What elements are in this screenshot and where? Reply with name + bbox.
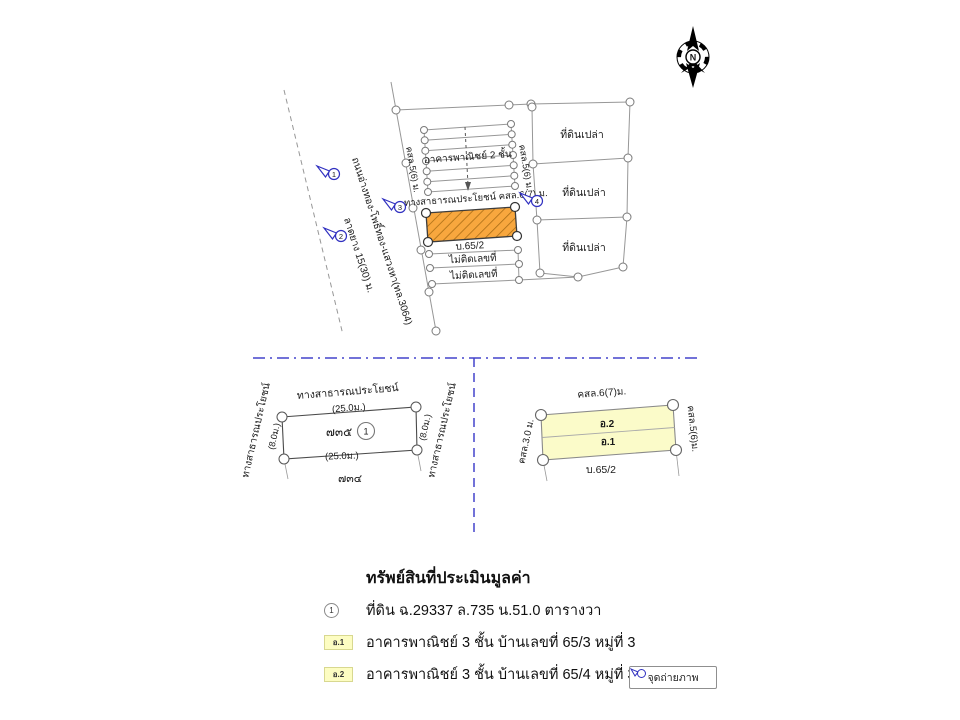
photo-point-button[interactable]: จุดถ่ายภาพ bbox=[629, 666, 717, 689]
legend-title: ทรัพย์สินที่ประเมินมูลค่า bbox=[366, 566, 678, 591]
subject-house-number: บ.65/2 bbox=[455, 240, 485, 253]
legend-row-building-2: อ.2 อาคารพาณิชย์ 3 ชั้น บ้านเลขที่ 65/4 … bbox=[318, 663, 678, 686]
road-left-edge bbox=[284, 90, 343, 335]
building-top-road-label: คสล.6(7)ม. bbox=[577, 386, 627, 400]
land-left-way-label: ทางสาธารณประโยชน์ bbox=[238, 381, 273, 479]
photo-point-label: จุดถ่ายภาพ bbox=[647, 669, 698, 686]
legend: ทรัพย์สินที่ประเมินมูลค่า 1 ที่ดิน ฉ.293… bbox=[318, 566, 678, 695]
compass-n-label: N bbox=[690, 53, 697, 63]
building-right-road-label: คสล.5(6)ม. bbox=[685, 405, 701, 452]
legend-row-land: 1 ที่ดิน ฉ.29337 ล.735 น.51.0 ตารางวา bbox=[318, 599, 678, 622]
legend-building-1-text: อาคารพาณิชย์ 3 ชั้น บ้านเลขที่ 65/3 หมู่… bbox=[366, 631, 636, 654]
building-left-road-label: คสล.3.0 ม. bbox=[516, 418, 536, 465]
photo-marker-2-icon: 2 bbox=[324, 228, 347, 242]
svg-text:1: 1 bbox=[332, 170, 336, 179]
photo-marker-1-icon: 1 bbox=[317, 166, 340, 180]
legend-building-2-text: อาคารพาณิชย์ 3 ชั้น บ้านเลขที่ 65/4 หมู่… bbox=[366, 663, 636, 686]
building-block-label: อาคารพาณิชย์ 2 ชั้น bbox=[423, 146, 512, 166]
building-house-number: บ.65/2 bbox=[586, 464, 616, 476]
compass-north-arrow: N bbox=[677, 26, 709, 88]
land-right-dimension: (8.0ม.) bbox=[417, 413, 433, 442]
legend-row-building-1: อ.1 อาคารพาณิชย์ 3 ชั้น บ้านเลขที่ 65/3 … bbox=[318, 631, 678, 654]
svg-text:4: 4 bbox=[535, 197, 539, 206]
site-map bbox=[284, 82, 630, 335]
vacant-land-2: ที่ดินเปล่า bbox=[562, 185, 606, 199]
building-detail-diagram: คสล.6(7)ม. คสล.3.0 ม. คสล.5(6)ม. อ.2 อ.1… bbox=[516, 386, 700, 481]
land-detail-diagram: ทางสาธารณประโยชน์ (25.0ม.) ๗๓๕ 1 (25.0ม.… bbox=[238, 381, 459, 485]
svg-text:3: 3 bbox=[398, 203, 402, 212]
vacant-land-3: ที่ดินเปล่า bbox=[562, 240, 606, 254]
land-left-dimension: (8.0ม.) bbox=[266, 422, 282, 451]
building-unit-1-label: อ.1 bbox=[601, 437, 616, 448]
no-number-strip-2: ไม่ติดเลขที่ bbox=[449, 266, 498, 283]
legend-land-text: ที่ดิน ฉ.29337 ล.735 น.51.0 ตารางวา bbox=[366, 599, 601, 622]
land-circle-badge: 1 bbox=[324, 603, 339, 618]
land-top-dimension: (25.0ม.) bbox=[332, 402, 366, 416]
svg-text:2: 2 bbox=[339, 232, 343, 241]
land-top-way-label: ทางสาธารณประโยชน์ bbox=[296, 381, 399, 402]
building-1-badge: อ.1 bbox=[324, 635, 353, 650]
photo-point-flag-icon bbox=[630, 667, 648, 680]
building-2-badge: อ.2 bbox=[324, 667, 353, 682]
survey-report-page: N bbox=[0, 0, 960, 720]
land-bottom-dimension: (25.0ม.) bbox=[325, 450, 359, 462]
subject-parcel-hatched bbox=[426, 207, 517, 242]
land-parcel-number: ๗๓๕ bbox=[326, 425, 352, 439]
vacant-land-1: ที่ดินเปล่า bbox=[560, 127, 604, 141]
photo-marker-3-icon: 3 bbox=[383, 199, 406, 213]
building-unit-2-label: อ.2 bbox=[600, 419, 615, 430]
adjacent-parcel-number: ๗๓๔ bbox=[338, 473, 362, 485]
land-marker-number: 1 bbox=[363, 427, 368, 437]
road-surface-label: ลาดยาง 15(30) ม. bbox=[341, 216, 376, 294]
